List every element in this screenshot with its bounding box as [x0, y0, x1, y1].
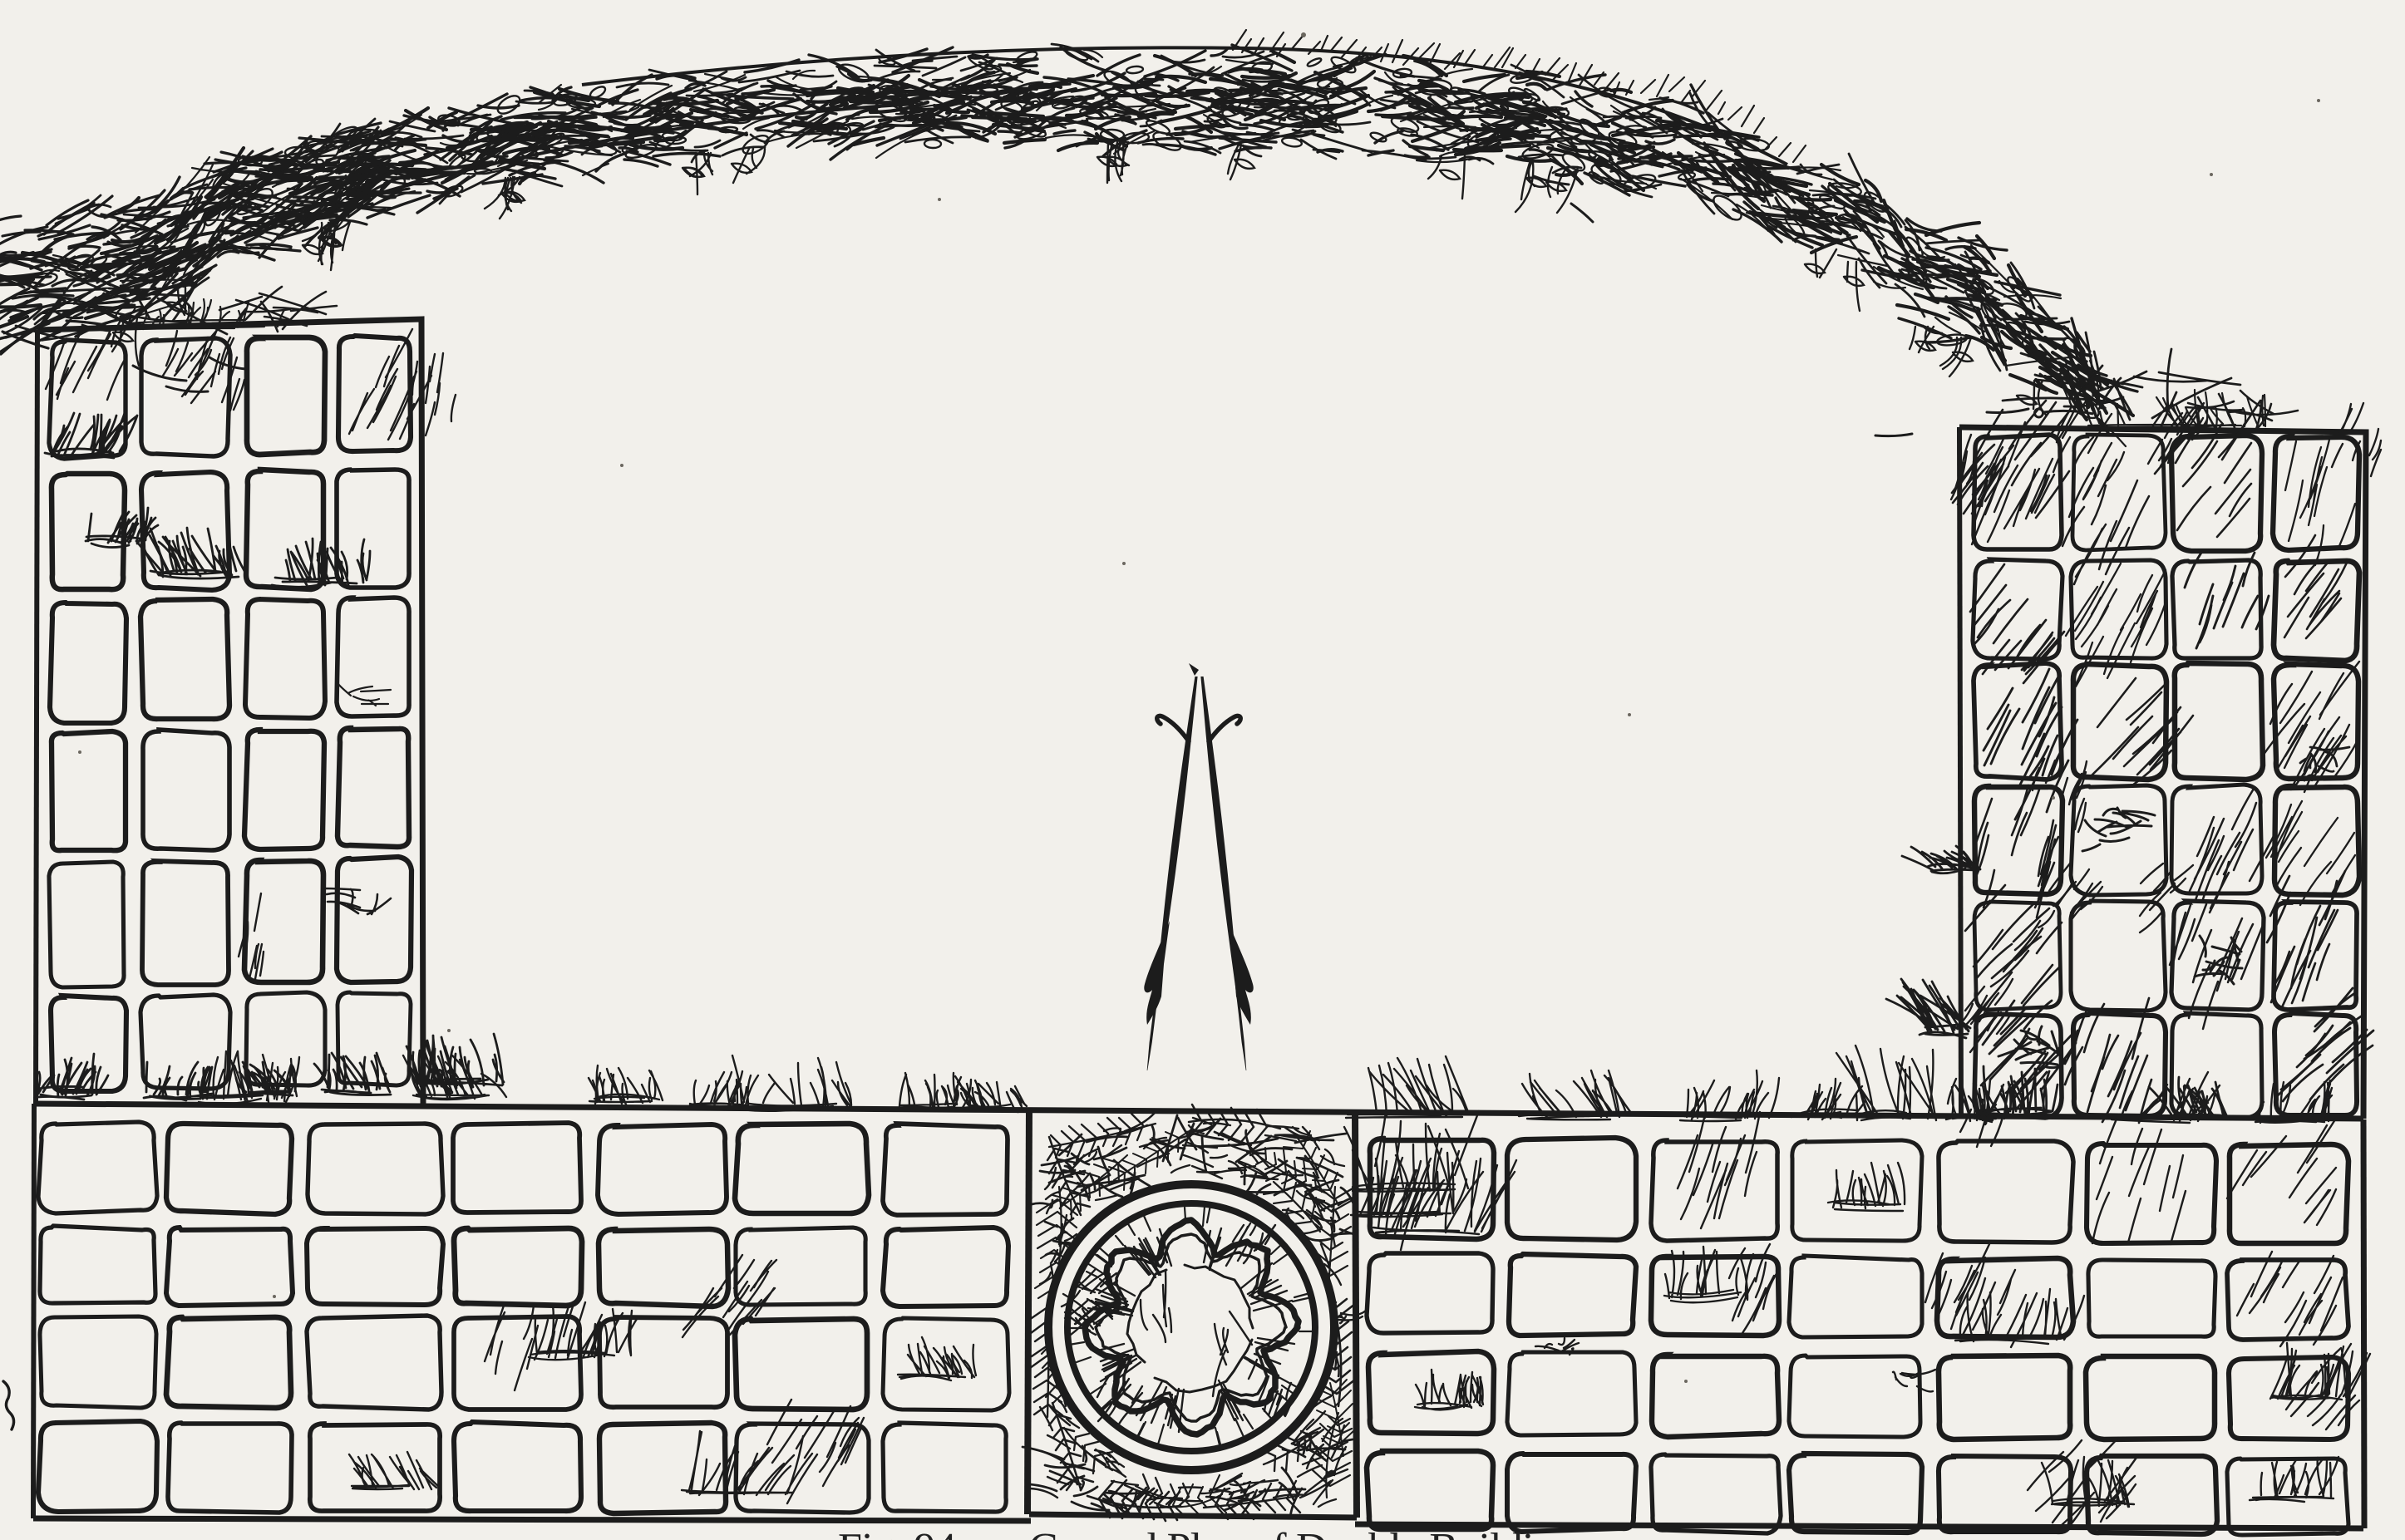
svg-text:Fig. 94. — Ground Plan of Doub: Fig. 94. — Ground Plan of Double Buildin…	[838, 1525, 1586, 1540]
